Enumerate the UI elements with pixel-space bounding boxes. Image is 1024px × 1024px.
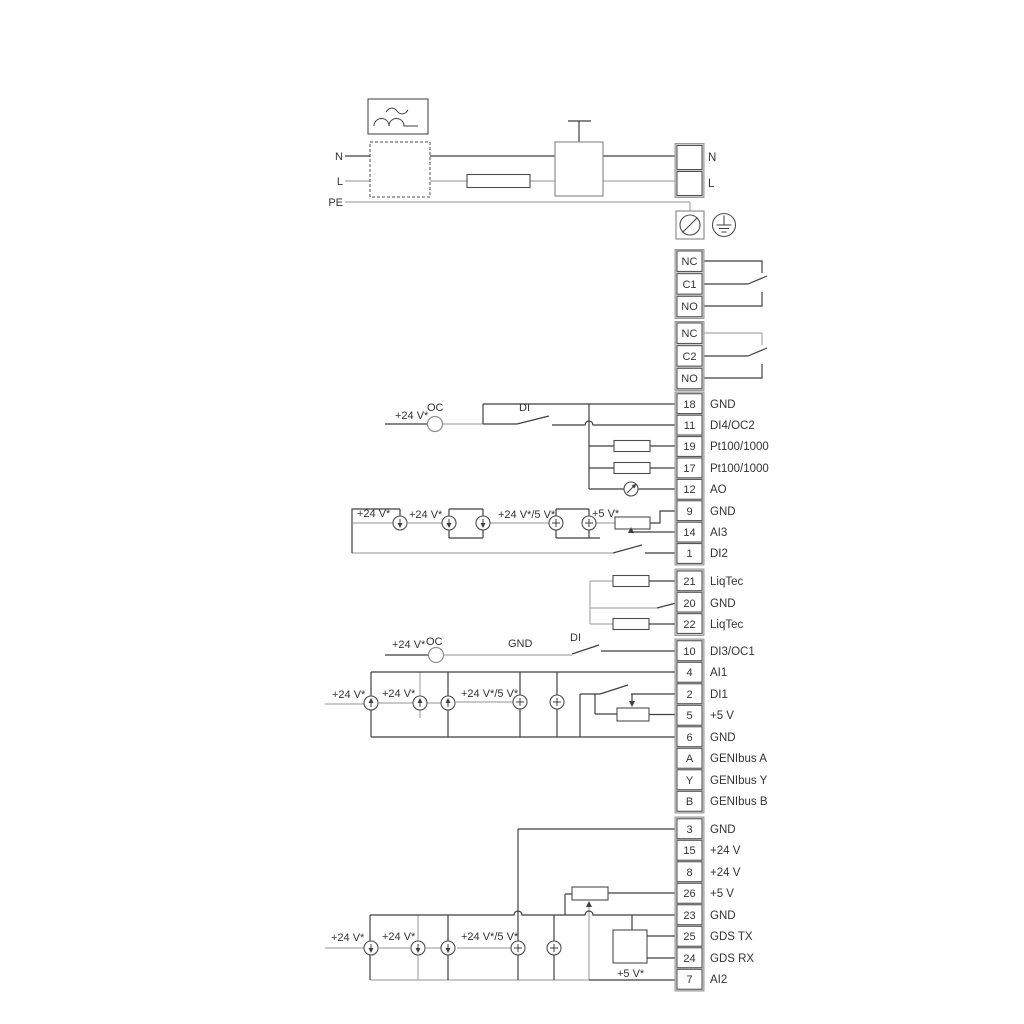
io1-section: +24 V* OC DI +24 V* +24 V* +24 V*/5 V* +… bbox=[352, 392, 769, 565]
voltage-source-icon bbox=[547, 941, 561, 955]
label-24v-ai3-2: +24 V* bbox=[409, 509, 443, 521]
io2-section: 21 20 22 LiqTec GND LiqTec bbox=[590, 569, 743, 636]
relay2-nc-label: NC bbox=[682, 328, 698, 340]
terminal-label-26: +5 V bbox=[710, 888, 734, 900]
terminal-number-17: 17 bbox=[683, 463, 695, 475]
relay1-switch-contact bbox=[748, 276, 767, 284]
terminal-number-5: 5 bbox=[686, 710, 692, 722]
current-source-icon bbox=[393, 516, 407, 530]
terminal-number-a: A bbox=[686, 753, 694, 765]
io2-wires-gray bbox=[590, 581, 657, 624]
terminal-number-12: 12 bbox=[683, 484, 695, 496]
relay1-section: NC C1 NO bbox=[675, 250, 767, 319]
liqtec-resistor-2 bbox=[613, 619, 649, 630]
terminal-label-11: DI4/OC2 bbox=[710, 420, 755, 432]
terminal-label-19: Pt100/1000 bbox=[710, 441, 769, 453]
terminal-label-21: LiqTec bbox=[710, 576, 743, 588]
io4-section: +24 V* +24 V* +24 V*/5 V* +5 V* 3 15 8 2… bbox=[325, 817, 754, 991]
pt100-resistor-2 bbox=[614, 463, 650, 474]
terminal-cell-n bbox=[677, 146, 702, 170]
label-n-out: N bbox=[708, 152, 716, 164]
terminal-label-20: GND bbox=[710, 598, 736, 610]
terminal-label-1: DI2 bbox=[710, 548, 728, 560]
io1-wires-dark bbox=[352, 404, 677, 553]
label-5v-gds: +5 V* bbox=[617, 968, 645, 980]
terminal-label-6: GND bbox=[710, 732, 736, 744]
terminal-label-7: AI2 bbox=[710, 974, 727, 986]
terminal-number-9: 9 bbox=[686, 506, 692, 518]
wiring-diagram-canvas: N L PE N L NC C1 NO bbox=[0, 0, 1024, 1024]
pt100-resistor-1 bbox=[614, 441, 650, 452]
terminal-label-y: GENIbus Y bbox=[710, 775, 768, 787]
terminal-number-11: 11 bbox=[684, 420, 695, 432]
terminal-label-23: GND bbox=[710, 910, 736, 922]
terminal-number-y: Y bbox=[686, 775, 694, 787]
liqtec-resistor-1 bbox=[613, 576, 649, 587]
label-24v-ai1-2: +24 V* bbox=[382, 688, 416, 700]
open-collector-icon bbox=[429, 648, 444, 663]
di2-switch-contact bbox=[613, 545, 642, 553]
terminal-label-17: Pt100/1000 bbox=[710, 463, 769, 475]
terminal-number-22: 22 bbox=[683, 619, 695, 631]
relay1-c1-label: C1 bbox=[682, 279, 696, 291]
terminal-label-5: +5 V bbox=[710, 710, 734, 722]
label-24v5v-ai2: +24 V*/5 V* bbox=[461, 931, 519, 943]
open-collector-icon bbox=[428, 417, 443, 432]
terminal-number-19: 19 bbox=[683, 441, 695, 453]
relay1-no-label: NO bbox=[681, 301, 698, 313]
terminal-label-4: AI1 bbox=[710, 667, 727, 679]
terminal-label-10: DI3/OC1 bbox=[710, 646, 755, 658]
potentiometer-ai1 bbox=[617, 701, 649, 721]
gds-sensor-box bbox=[613, 930, 647, 963]
relay2-no-label: NO bbox=[681, 373, 698, 385]
terminal-label-18: GND bbox=[710, 399, 736, 411]
terminal-number-15: 15 bbox=[683, 845, 695, 857]
label-l-in: L bbox=[337, 176, 343, 188]
label-di3: DI bbox=[570, 632, 581, 644]
terminal-label-3: GND bbox=[710, 824, 736, 836]
label-n-in: N bbox=[335, 151, 343, 163]
terminal-number-21: 21 bbox=[683, 576, 695, 588]
terminal-number-8: 8 bbox=[686, 867, 692, 879]
terminal-label-14: AI3 bbox=[710, 527, 727, 539]
label-di4: DI bbox=[519, 402, 530, 414]
wiper-arrow-icon bbox=[629, 701, 635, 707]
label-24v-ai3-1: +24 V* bbox=[357, 508, 391, 520]
label-24v-oc1: +24 V* bbox=[392, 639, 426, 651]
label-pe: PE bbox=[328, 197, 343, 209]
fuse bbox=[467, 175, 530, 188]
terminal-number-1: 1 bbox=[686, 548, 692, 560]
emc-filter-box bbox=[370, 142, 430, 197]
relay2-wiring-dark bbox=[703, 356, 762, 378]
terminal-number-14: 14 bbox=[683, 527, 695, 539]
di1-switch-contact bbox=[600, 685, 628, 694]
voltage-source-icon bbox=[511, 941, 525, 955]
label-oc2: OC bbox=[427, 402, 444, 414]
label-l-out: L bbox=[708, 178, 715, 190]
terminal-number-7: 7 bbox=[686, 974, 692, 986]
rectifier-box bbox=[368, 99, 428, 134]
terminal-label-12: AO bbox=[710, 484, 727, 496]
label-5v-ai3: +5 V* bbox=[592, 508, 620, 520]
io3-wires-dark bbox=[371, 651, 677, 737]
relay2-section: NC C2 NO bbox=[675, 322, 767, 391]
terminal-label-9: GND bbox=[710, 506, 736, 518]
current-source-icon bbox=[476, 516, 490, 530]
relay1-nc-label: NC bbox=[682, 256, 698, 268]
terminal-label-22: LiqTec bbox=[710, 619, 743, 631]
label-24v5v-ai3: +24 V*/5 V* bbox=[498, 509, 556, 521]
terminal-label-15: +24 V bbox=[710, 845, 741, 857]
terminal-number-4: 4 bbox=[686, 667, 692, 679]
relay2-switch-contact bbox=[748, 348, 767, 356]
terminal-block-mains: N L bbox=[675, 144, 716, 198]
current-source-icon bbox=[364, 941, 378, 955]
terminal-label-8: +24 V bbox=[710, 867, 741, 879]
relay1-wiring bbox=[703, 261, 762, 306]
label-24v-ai2-1: +24 V* bbox=[331, 932, 365, 944]
label-24v-ai1-1: +24 V* bbox=[332, 689, 366, 701]
terminal-number-10: 10 bbox=[683, 646, 695, 658]
terminal-number-2: 2 bbox=[686, 689, 692, 701]
label-oc1: OC bbox=[426, 636, 443, 648]
analog-output-meter-icon bbox=[624, 482, 638, 496]
main-switch-box bbox=[555, 142, 603, 196]
potentiometer-ai3 bbox=[615, 517, 650, 533]
terminal-number-6: 6 bbox=[686, 732, 692, 744]
label-24v-ai2-2: +24 V* bbox=[382, 931, 416, 943]
power-section: N L PE N L bbox=[328, 99, 735, 239]
terminal-label-25: GDS TX bbox=[710, 931, 753, 943]
terminal-label-24: GDS RX bbox=[710, 953, 754, 965]
current-source-icon bbox=[364, 696, 378, 710]
terminal-number-20: 20 bbox=[683, 598, 695, 610]
di3-switch-contact bbox=[572, 645, 599, 654]
terminal-label-2: DI1 bbox=[710, 689, 728, 701]
terminal-number-3: 3 bbox=[686, 824, 692, 836]
di4-switch-contact bbox=[517, 416, 549, 424]
wiper-arrow-icon bbox=[586, 901, 592, 907]
relay2-wiring-gray bbox=[703, 333, 762, 345]
terminal-number-18: 18 bbox=[683, 399, 695, 411]
relay2-c2-label: C2 bbox=[682, 351, 696, 363]
current-source-icon bbox=[442, 516, 456, 530]
earth-symbol bbox=[713, 214, 736, 237]
terminal-label-b: GENIbus B bbox=[710, 796, 768, 808]
io2-wires-dark bbox=[649, 581, 677, 624]
current-source-icon bbox=[411, 941, 425, 955]
terminal-cell-l bbox=[677, 172, 702, 196]
terminal-label-a: GENIbus A bbox=[710, 753, 767, 765]
current-source-icon bbox=[441, 696, 455, 710]
voltage-source-icon bbox=[550, 695, 564, 709]
label-24v-oc2: +24 V* bbox=[395, 410, 429, 422]
wiring-diagram-page: N L PE N L NC C1 NO bbox=[0, 0, 1024, 1024]
terminal-number-26: 26 bbox=[683, 888, 695, 900]
pe-screw-terminal bbox=[676, 211, 704, 239]
io3-section: +24 V* OC GND DI +24 V* +24 V* +24 V*/5 … bbox=[325, 632, 768, 813]
terminal-number-b: B bbox=[686, 796, 693, 808]
potentiometer-ai2 bbox=[572, 887, 608, 907]
label-gnd-oc1: GND bbox=[508, 638, 533, 650]
terminal-number-25: 25 bbox=[683, 931, 695, 943]
terminal-number-24: 24 bbox=[683, 953, 695, 965]
terminal-number-23: 23 bbox=[683, 910, 695, 922]
current-source-icon bbox=[441, 941, 455, 955]
label-24v5v-ai1: +24 V*/5 V* bbox=[461, 688, 519, 700]
